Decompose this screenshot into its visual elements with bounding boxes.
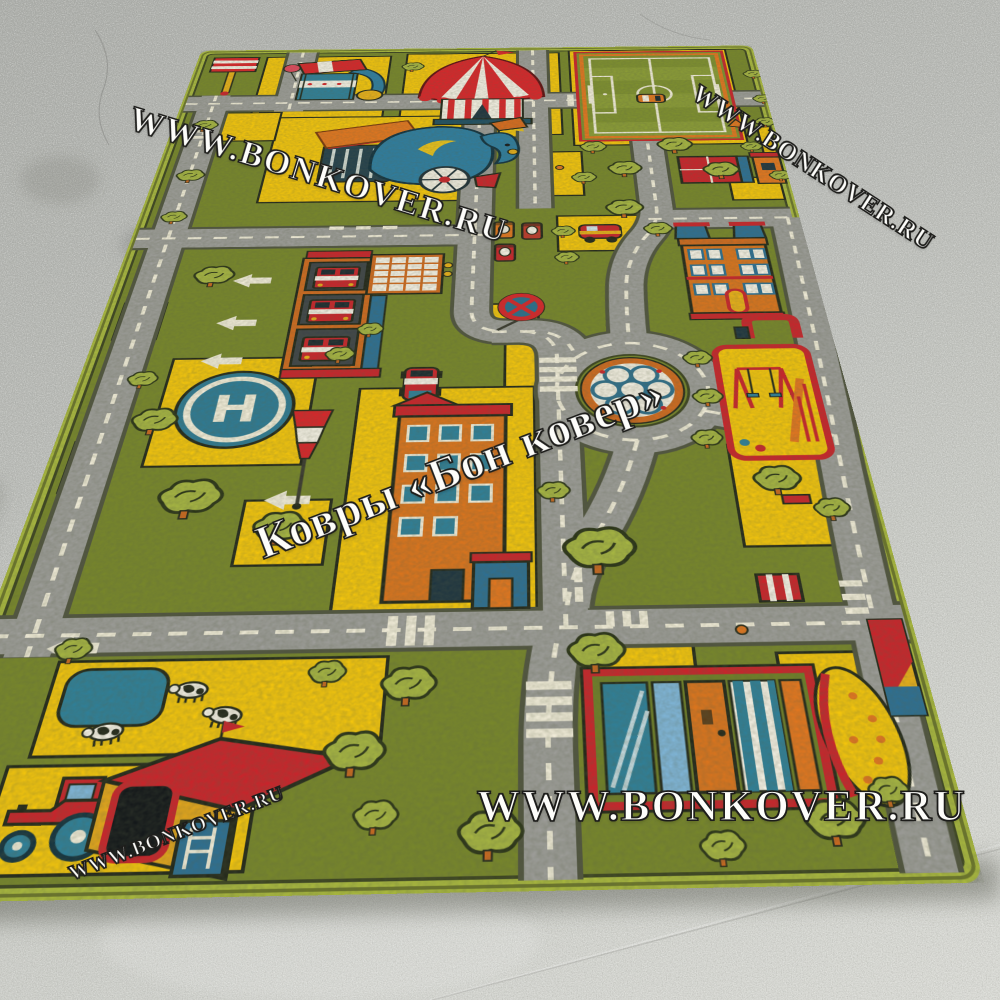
watermark-bottom: WWW.BONKOVER.RU	[477, 782, 967, 831]
scene: H	[0, 0, 1000, 1000]
